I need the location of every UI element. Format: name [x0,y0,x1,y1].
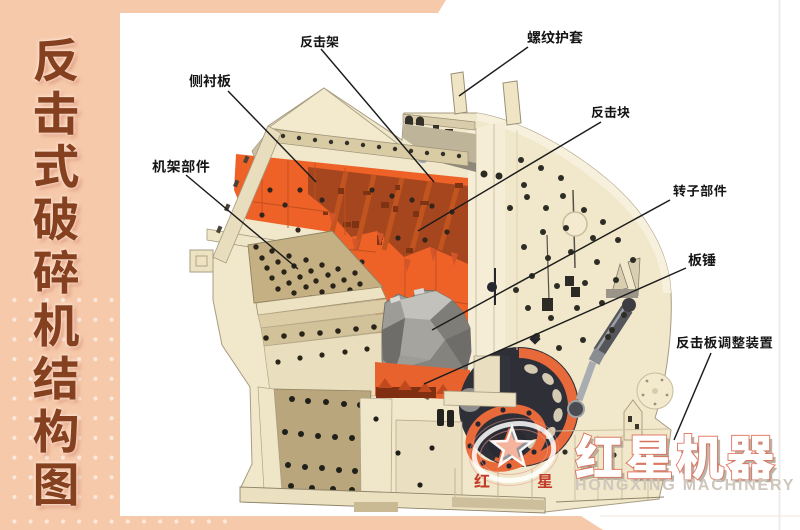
svg-text:HONGXING MACHINERY: HONGXING MACHINERY [575,477,795,494]
